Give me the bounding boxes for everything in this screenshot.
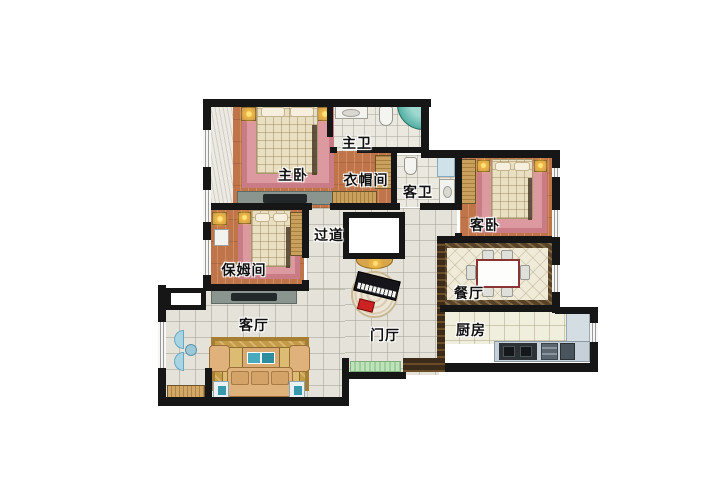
dining-chair-icon <box>501 287 513 297</box>
round-table-icon <box>185 344 197 356</box>
living-tv-cabinet <box>211 289 297 304</box>
wall-marble <box>437 243 445 365</box>
curtain-strip <box>211 106 233 203</box>
room-label-kitchen: 厨房 <box>456 320 486 340</box>
side-table-top <box>218 386 226 395</box>
room-label-foyer: 门厅 <box>370 325 400 345</box>
appliance-icon <box>541 343 558 360</box>
wall <box>302 208 309 258</box>
side-table-icon <box>289 381 305 398</box>
pillow-icon <box>261 107 285 117</box>
pillow-icon <box>495 162 511 171</box>
nanny-side-table <box>214 229 229 246</box>
sink-icon <box>560 343 575 360</box>
pillow-icon <box>273 213 288 222</box>
room-label-guest-bathroom: 客卫 <box>403 182 433 202</box>
room-label-dining-room: 餐厅 <box>454 283 484 303</box>
wall <box>327 99 333 137</box>
tv-icon <box>231 293 277 301</box>
basin-icon <box>443 186 452 198</box>
wall <box>345 372 406 379</box>
shower-icon <box>437 156 455 177</box>
basin-icon <box>342 109 360 117</box>
sofa-cushion <box>271 371 289 385</box>
blanket-fold <box>528 178 532 220</box>
room-label-hallway: 过道 <box>314 225 344 245</box>
wall <box>158 285 166 322</box>
sofa-cushion <box>231 371 249 385</box>
window-icon <box>158 322 166 368</box>
dining-chair-icon <box>520 265 530 280</box>
side-table-top <box>294 386 302 395</box>
kitchen-counter-right <box>566 312 590 343</box>
wall <box>440 305 560 312</box>
room-label-master-bathroom: 主卫 <box>342 133 372 153</box>
wall <box>391 153 397 207</box>
tv-icon <box>263 194 307 203</box>
wall <box>203 203 312 210</box>
wall <box>203 284 308 291</box>
wall <box>330 203 400 210</box>
pillow-icon <box>290 107 314 117</box>
shaft-void <box>343 212 405 259</box>
wall <box>437 236 560 243</box>
wall <box>552 177 560 210</box>
pillow-icon <box>255 213 270 222</box>
sink-icon <box>439 179 455 204</box>
window-icon <box>552 210 560 237</box>
guest-wardrobe <box>461 159 476 204</box>
piano-body <box>353 271 401 301</box>
wall <box>158 368 166 406</box>
window-icon <box>552 265 560 292</box>
wall <box>205 368 212 397</box>
burner-icon <box>503 346 515 357</box>
pillow-icon <box>514 162 530 171</box>
room-label-living-room: 客厅 <box>239 315 269 335</box>
stove-icon <box>499 343 537 360</box>
floorplan-canvas: 主卧 主卫 衣帽间 客卫 客卧 过道 保姆间 餐厅 厨房 客厅 门厅 <box>0 0 728 485</box>
decor-icon <box>372 260 379 267</box>
wall <box>203 222 211 240</box>
wall <box>203 99 211 130</box>
room-label-nanny-room: 保姆间 <box>222 260 267 280</box>
wall <box>552 150 560 168</box>
lamp-icon <box>245 110 253 118</box>
dining-chair-icon <box>466 265 476 280</box>
burner-icon <box>520 346 532 357</box>
wall <box>203 167 211 190</box>
entry-threshold <box>403 358 445 372</box>
wall <box>158 397 349 406</box>
room-label-walk-in-closet: 衣帽间 <box>344 170 389 190</box>
wall <box>302 280 309 291</box>
nanny-bed-icon <box>251 210 291 267</box>
piano-keys <box>357 282 397 297</box>
blanket-fold <box>312 125 317 175</box>
sofa-cushion <box>251 371 269 385</box>
sofa-icon <box>227 367 293 397</box>
wall <box>330 147 337 153</box>
lamp-icon <box>216 215 224 223</box>
side-table-icon <box>213 381 229 398</box>
guest-bed-icon <box>491 159 533 219</box>
entry-doormat-icon <box>350 361 401 372</box>
window-icon <box>590 323 598 342</box>
lamp-icon <box>537 162 544 169</box>
lamp-icon <box>241 214 248 221</box>
wall <box>455 157 462 210</box>
window-icon <box>203 190 211 222</box>
master-bed-icon <box>256 104 318 174</box>
window-icon <box>552 168 560 177</box>
toilet-icon <box>379 106 393 126</box>
wall <box>421 150 560 158</box>
lamp-icon <box>480 162 487 169</box>
coffee-table-top <box>247 352 275 364</box>
bay-window <box>166 288 206 310</box>
wall <box>203 99 431 107</box>
sink-icon <box>335 106 368 119</box>
wall <box>590 307 598 323</box>
room-label-guest-bedroom: 客卧 <box>470 215 500 235</box>
room-label-master-bedroom: 主卧 <box>278 165 308 185</box>
wall <box>440 363 598 372</box>
toilet-icon <box>404 157 417 175</box>
coffee-table-icon <box>242 347 280 369</box>
window-icon <box>203 130 211 167</box>
window-icon <box>203 240 211 275</box>
